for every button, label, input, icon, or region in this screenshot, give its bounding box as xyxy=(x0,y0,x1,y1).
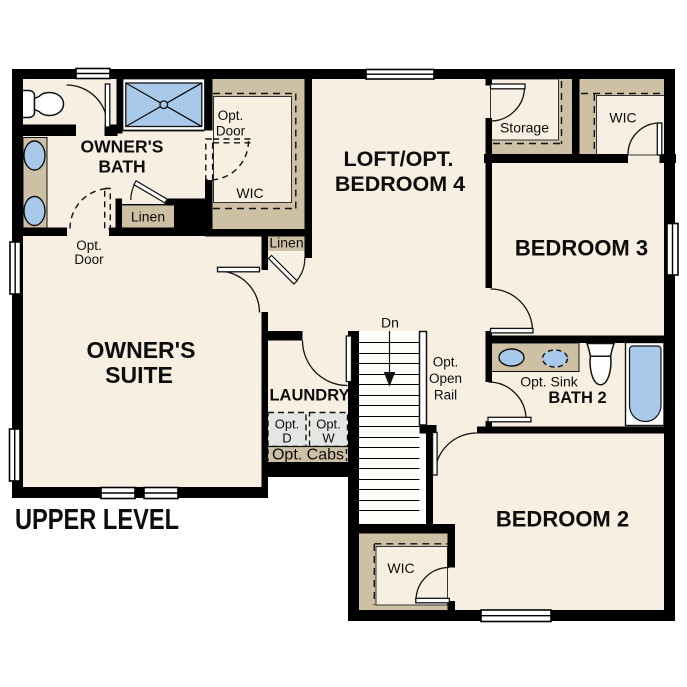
svg-text:OWNER'S: OWNER'S xyxy=(81,137,164,157)
svg-text:Dn: Dn xyxy=(381,315,399,331)
svg-text:WIC: WIC xyxy=(609,110,636,126)
svg-text:BEDROOM 2: BEDROOM 2 xyxy=(496,507,629,532)
svg-text:Rail: Rail xyxy=(434,388,457,403)
svg-text:BEDROOM 3: BEDROOM 3 xyxy=(515,236,648,261)
svg-text:Linen: Linen xyxy=(131,209,165,225)
svg-text:WIC: WIC xyxy=(387,560,414,576)
svg-text:Opt. Cabs: Opt. Cabs xyxy=(272,447,344,464)
svg-text:Open: Open xyxy=(429,371,462,386)
svg-text:Linen: Linen xyxy=(269,235,303,251)
svg-text:BATH 2: BATH 2 xyxy=(548,389,606,407)
svg-text:Opt.: Opt. xyxy=(218,108,244,123)
svg-text:Opt.: Opt. xyxy=(316,417,341,432)
svg-text:Opt. Sink: Opt. Sink xyxy=(520,374,579,390)
svg-text:Opt.: Opt. xyxy=(433,355,459,370)
svg-text:BATH: BATH xyxy=(98,157,145,177)
svg-text:OWNER'S: OWNER'S xyxy=(87,337,196,363)
svg-text:LAUNDRY: LAUNDRY xyxy=(269,387,349,405)
svg-text:BEDROOM 4: BEDROOM 4 xyxy=(335,172,465,196)
svg-text:Storage: Storage xyxy=(500,120,549,136)
svg-text:UPPER LEVEL: UPPER LEVEL xyxy=(15,504,179,536)
svg-text:D: D xyxy=(282,431,291,446)
svg-text:LOFT/OPT.: LOFT/OPT. xyxy=(344,147,454,171)
svg-text:WIC: WIC xyxy=(236,185,263,201)
svg-text:Opt.: Opt. xyxy=(76,238,102,253)
svg-text:Door: Door xyxy=(216,124,246,139)
svg-text:Door: Door xyxy=(74,252,104,267)
svg-text:W: W xyxy=(322,431,335,446)
svg-text:Opt.: Opt. xyxy=(275,417,300,432)
svg-text:SUITE: SUITE xyxy=(105,362,173,388)
